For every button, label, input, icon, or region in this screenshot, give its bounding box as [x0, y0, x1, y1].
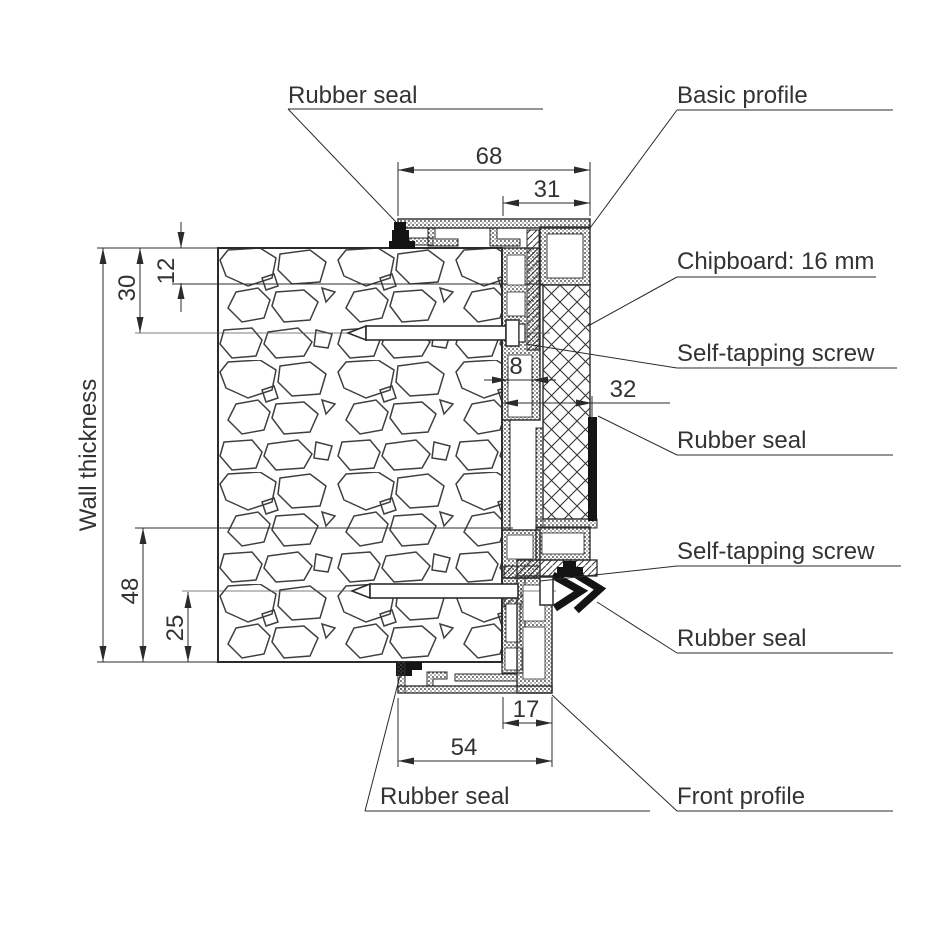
- wall-rubble-hatch: [218, 248, 502, 662]
- rubber-seal-side-strip: [588, 417, 597, 521]
- front-profile-ledge: [455, 674, 517, 681]
- front-profile-bottom-wall: [398, 686, 552, 693]
- dim-68: 68: [398, 143, 590, 216]
- rubber-seal-side-bottom-label: Rubber seal: [677, 625, 806, 652]
- callout-basic-profile: Basic profile: [590, 82, 893, 228]
- cross-section-drawing: 68 31 12 30 Wall thickness 48: [0, 0, 935, 931]
- self-tapping-screw-bottom-label: Self-tapping screw: [677, 538, 875, 565]
- rail-cavity: [542, 533, 584, 554]
- clamp-seal-bump: [563, 561, 576, 568]
- front-profile-label: Front profile: [677, 783, 805, 810]
- dim-30-value: 30: [114, 275, 141, 302]
- screw-bottom-shaft: [370, 584, 518, 598]
- callout-rubber-seal-side-bottom: Rubber seal: [597, 602, 893, 653]
- dim-12: 12: [153, 222, 181, 312]
- basic-profile-cavity: [547, 234, 583, 278]
- dim-48: 48: [117, 528, 144, 662]
- rubber-seal-top-label: Rubber seal: [288, 82, 417, 109]
- panel-holder-left-wall: [536, 428, 543, 527]
- technical-drawing-page: 68 31 12 30 Wall thickness 48: [0, 0, 935, 931]
- front-profile-hook: [427, 672, 447, 686]
- frame-cavity-1: [507, 255, 525, 285]
- dim-8-value: 8: [509, 353, 522, 380]
- screw-top-head: [506, 320, 519, 346]
- front-profile-cavity-2: [523, 627, 545, 679]
- screw-top-shaft: [366, 326, 506, 340]
- callout-rubber-seal-side-top: Rubber seal: [598, 416, 893, 455]
- dim-68-value: 68: [476, 143, 503, 170]
- screw-top-nut: [519, 324, 525, 342]
- frame-cavity-2: [507, 292, 525, 316]
- rubber-seal-side-top-label: Rubber seal: [677, 427, 806, 454]
- dim-32-value: 32: [610, 376, 637, 403]
- cover-hook-1: [428, 228, 458, 246]
- rubber-seal-bottom-label: Rubber seal: [380, 783, 509, 810]
- wall-thickness-label: Wall thickness: [75, 379, 102, 531]
- rubber-seal-chevron: [556, 575, 600, 608]
- dim-17: 17: [503, 696, 552, 767]
- chipboard-hatch: [543, 285, 590, 519]
- wall-section: [135, 248, 543, 662]
- frame-cavity-4: [507, 535, 533, 559]
- callout-chipboard: Chipboard: 16 mm: [588, 248, 876, 326]
- dim-48-value: 48: [117, 578, 144, 605]
- dim-25: 25: [162, 592, 189, 662]
- chipboard-panel: [543, 285, 590, 519]
- frame-thin-wall: [502, 420, 510, 530]
- dim-31: 31: [503, 176, 590, 216]
- basic-profile-label: Basic profile: [677, 82, 808, 109]
- dim-54-value: 54: [451, 734, 478, 761]
- dim-wall-thickness: Wall thickness: [75, 248, 218, 662]
- self-tapping-screw-top-label: Self-tapping screw: [677, 340, 875, 367]
- dim-12-value: 12: [153, 258, 180, 285]
- basic-profile-box: [540, 227, 590, 285]
- frame-screw-channel: [527, 230, 539, 350]
- dim-25-value: 25: [162, 615, 189, 642]
- callout-rubber-seal-top: Rubber seal: [288, 82, 543, 222]
- cover-hook-2: [490, 228, 520, 246]
- dim-17-value: 17: [513, 696, 540, 723]
- chipboard-label: Chipboard: 16 mm: [677, 248, 874, 275]
- dim-31-value: 31: [534, 176, 561, 203]
- dim-30: 30: [114, 248, 141, 333]
- callout-front-profile: Front profile: [552, 695, 893, 811]
